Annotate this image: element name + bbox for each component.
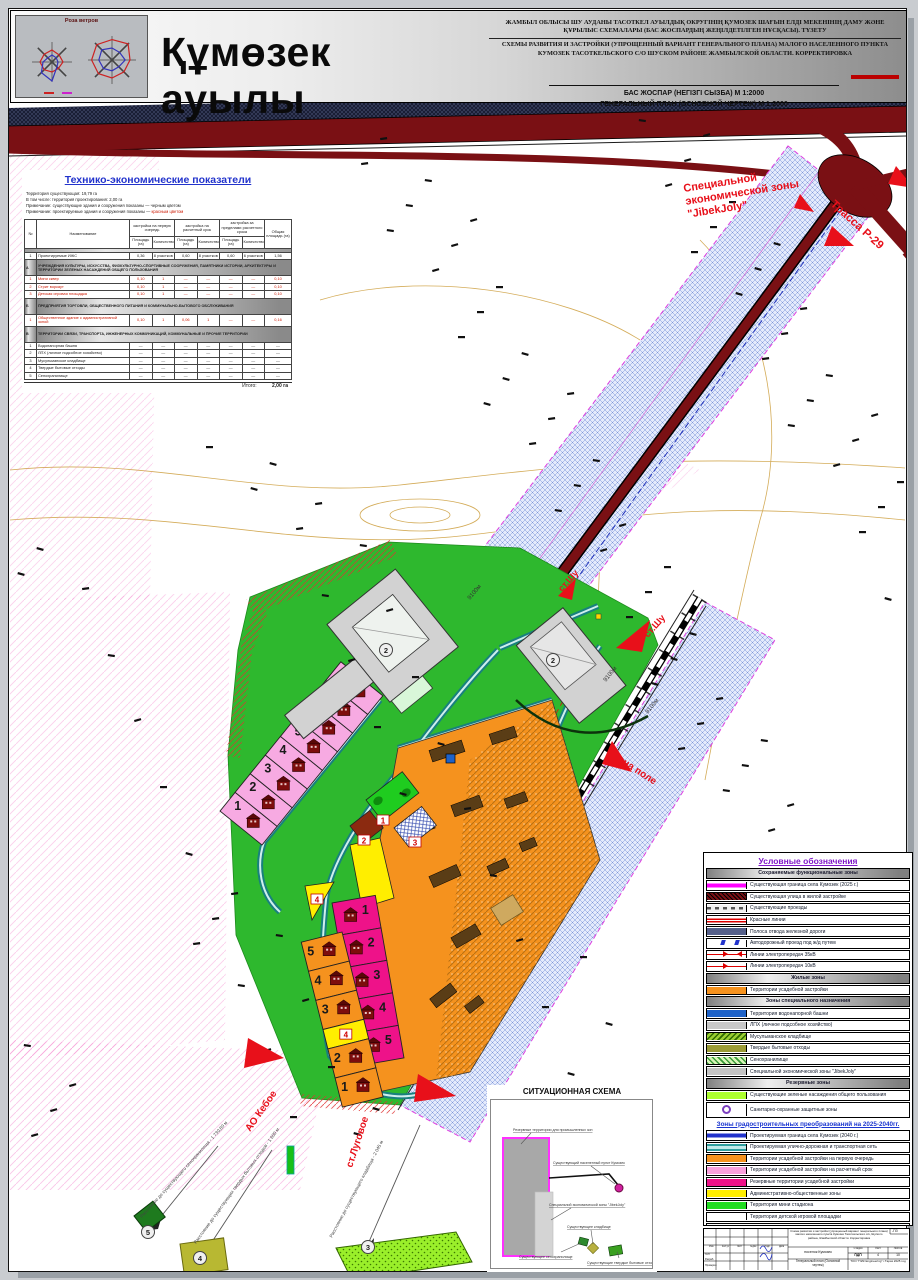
tep-row-name: Твердые бытовые отходы	[37, 365, 130, 372]
legend-item: Территория стрит воркаута	[706, 1223, 910, 1226]
tep-cell: 1	[152, 276, 175, 283]
tep-panel: Технико-экономические показатели Террито…	[22, 170, 294, 393]
tep-cell: 1	[152, 314, 175, 326]
page-title: Құмөзек ауылы	[161, 29, 481, 89]
windrose-charts	[16, 26, 147, 98]
plot-number: 1	[362, 903, 369, 917]
tep-row-total: —	[265, 365, 292, 372]
legend-title: Условные обозначения	[706, 856, 910, 866]
tep-cell: 1	[152, 283, 175, 290]
scale-russian: ГЕНЕРАЛЬНЫЙ ПЛАН (ОСНОВНОЙ ЧЕРТЕЖ) М 1:2…	[549, 100, 839, 111]
tep-cell: —	[242, 291, 265, 298]
hay-swatch-icon	[707, 1057, 747, 1064]
situational-map-box: Резервные территории для промышленных зо…	[490, 1099, 653, 1269]
legend-item: Территория водонапорной башни	[706, 1008, 910, 1019]
tep-col-header: №	[25, 220, 37, 248]
legend-item-label: Территория водонапорной башни	[750, 1011, 828, 1017]
legend-zones2040-title: Зоны градостроительных преобразований на…	[712, 1121, 904, 1129]
legend-item: Резервные территории усадебной застройки	[706, 1177, 910, 1188]
sez-swatch-icon	[707, 1068, 747, 1075]
tep-cell: —	[130, 357, 153, 364]
legend-item: Административно-общественные зоны	[706, 1188, 910, 1199]
windrose-title: Роза ветров	[16, 18, 147, 24]
cemetery-swatch-icon	[707, 1033, 747, 1040]
tep-cell: —	[242, 357, 265, 364]
playground-swatch-icon	[707, 1213, 747, 1220]
tep-section-title: УЧРЕЖДЕНИЯ КУЛЬТУРЫ, ИСКУССТВА, ФИЗКУЛЬТ…	[37, 260, 292, 276]
lep10-swatch-icon	[707, 963, 747, 970]
tep-cell: —	[175, 372, 198, 379]
tep-total-value: 2,00 га	[272, 383, 288, 389]
tep-cell: —	[175, 291, 198, 298]
tep-row-total: —	[265, 350, 292, 357]
legend-item: Проектируемая улично-дорожная и транспор…	[706, 1142, 910, 1153]
tep-cell: —	[242, 342, 265, 349]
tep-cell: —	[197, 350, 220, 357]
plot-number: 1	[341, 1080, 348, 1094]
tep-row-total: 0,10	[265, 291, 292, 298]
legend-item: Существующая улица в жилой застройке	[706, 892, 910, 903]
tep-row-name: Стрит воркаут	[37, 283, 130, 290]
tep-row-name: ЛПХ (личное подсобное хозяйство)	[37, 350, 130, 357]
legend-item: Территория детской игровой площадки	[706, 1212, 910, 1223]
driveway-swatch-icon	[707, 905, 747, 912]
tep-row-name: Детская игровая площадка	[37, 291, 130, 298]
tep-cell: 0,60	[220, 252, 243, 259]
stamp-head-cell: Лист	[733, 1246, 746, 1249]
tep-row-total: 0,10	[265, 276, 292, 283]
sanitary-swatch-icon	[707, 1104, 747, 1116]
tep-cell: —	[197, 357, 220, 364]
tep-cell: —	[242, 276, 265, 283]
stamp-doc-name: Генеральный план (Основной чертеж)	[790, 1260, 846, 1267]
sit-label-sez: Специальной экономической зоны "JibekJol…	[549, 1203, 626, 1207]
legend-item-label: Линии электропередач 10кВ	[750, 963, 816, 969]
tep-section-title: ПРЕДПРИЯТИЯ ТОРГОВЛИ, ОБЩЕСТВЕННОГО ПИТА…	[37, 298, 292, 314]
tep-cell: —	[175, 357, 198, 364]
tep-cell: 0,10	[130, 283, 153, 290]
legend-panel: Условные обозначения Сохраняемые функцио…	[703, 852, 913, 1226]
tep-cell: —	[130, 342, 153, 349]
tep-cell: —	[197, 365, 220, 372]
legend-item-label: Автодорожный проезд под ж/д путем	[750, 940, 836, 946]
legend-item: Существующие зеленые насаждения общего п…	[706, 1090, 910, 1101]
legend-item: Твердые бытовые отходы	[706, 1043, 910, 1054]
scale-block: БАС ЖОСПАР (НЕГІЗГІ СЫЗБА) М 1:2000 ГЕНЕ…	[549, 85, 839, 110]
boundary2040-swatch-icon	[707, 1132, 747, 1139]
legend-item-label: Проектируемая граница села Кумозек (2040…	[750, 1133, 858, 1139]
tep-cell: 0,06	[175, 314, 198, 326]
underpass-swatch-icon	[707, 940, 747, 947]
tep-cell: 0,36	[130, 252, 153, 259]
subtitle-russian: СХЕМЫ РАЗВИТИЯ И ЗАСТРОЙКИ (УПРОЩЕННЫЙ В…	[489, 38, 901, 57]
legend-item-label: Существующая граница села Кумозек (2025 …	[750, 882, 858, 888]
legend-item: Проектируемая граница села Кумозек (2040…	[706, 1130, 910, 1141]
legend-item: Территория мини стадиона	[706, 1200, 910, 1211]
legend-item-label: ЛПХ (личное подсобное хозяйство)	[750, 1022, 832, 1028]
redlines-swatch-icon	[707, 917, 747, 924]
boxed-number: 4	[315, 895, 320, 904]
plot-number: 2	[334, 1051, 341, 1065]
stamp-role-cell: Разраб.	[705, 1259, 729, 1262]
legend-item-label: Резервные территории усадебной застройки	[750, 1179, 854, 1185]
tep-cell: 8 участков	[152, 252, 175, 259]
legend-item-label: Существующие проезды	[750, 905, 807, 911]
tep-note: Примечание: проектируемые здания и соору…	[26, 209, 290, 215]
legend-item-label: Твердые бытовые отходы	[750, 1045, 810, 1051]
tep-cell: —	[242, 350, 265, 357]
plot-marker-number: 4	[344, 1031, 349, 1040]
tep-row-name: Общественное здание с административной з…	[37, 314, 130, 326]
legend-item-label: Территория детской игровой площадки	[750, 1214, 841, 1220]
tep-cell: 0,10	[130, 276, 153, 283]
stadium-swatch-icon	[707, 1202, 747, 1209]
tep-col-header: Площадь (га)	[130, 236, 153, 248]
stamp-code: -ПЗ	[892, 1229, 898, 1233]
legend-section-header: Сохраняемые функциональные зоны	[706, 868, 910, 879]
street-swatch-icon	[707, 893, 747, 900]
stamp-stage-label: Стадия	[849, 1248, 867, 1251]
tep-col-header: Площадь (га)	[220, 236, 243, 248]
stamp-head-cell: №док.	[747, 1246, 760, 1249]
tep-cell: —	[220, 283, 243, 290]
tep-cell: —	[130, 350, 153, 357]
tep-total-label: Итого:	[242, 383, 257, 389]
sit-label-hay: Существующее сенохранилище	[519, 1255, 573, 1259]
tep-cell: —	[220, 357, 243, 364]
tep-col-header: Наименование	[37, 220, 130, 248]
tep-cell: 1	[197, 314, 220, 326]
legend-item: Линии электропередач 35кВ	[706, 950, 910, 961]
legend-item-label: Территории усадебной застройки	[750, 987, 828, 993]
tep-cell: —	[130, 365, 153, 372]
plot-number: 2	[368, 935, 375, 949]
legend-section-header: Резервные зоны	[706, 1078, 910, 1089]
legend-item: Линии электропередач 10кВ	[706, 961, 910, 972]
stamp-firm: ТОО "ПИК Engineering" г.Тараз 2025 год	[849, 1260, 907, 1263]
sit-label-reserve: Резервные территории для промышленных зо…	[513, 1128, 593, 1132]
situational-map-drawing: Резервные территории для промышленных зо…	[491, 1100, 652, 1268]
tep-row-total: 0,10	[265, 283, 292, 290]
legend-item: Полоса отвода железной дороги	[706, 926, 910, 937]
situational-map-panel: СИТУАЦИОННАЯ СХЕМА Рез	[487, 1085, 657, 1272]
tep-row-total: —	[265, 342, 292, 349]
stamp-head-cell: Подп.	[761, 1246, 774, 1249]
legend-item-label: Административно-общественные зоны	[750, 1191, 841, 1197]
legend-item: Территории усадебной застройки	[706, 985, 910, 996]
lep35-swatch-icon	[707, 951, 747, 958]
tep-row-total: —	[265, 372, 292, 379]
red-accent-bar	[851, 75, 899, 79]
subtitle-kazakh: ЖАМБЫЛ ОБЛЫСЫ ШУ АУДАНЫ ТАСОТКЕЛ АУЫЛДЫҚ…	[489, 19, 901, 35]
plot-number: 5	[307, 944, 314, 958]
tep-cell: —	[175, 342, 198, 349]
stamp-sheets-label: Листов	[889, 1248, 907, 1251]
magenta3-swatch-icon	[707, 1179, 747, 1186]
legend-item: Автодорожный проезд под ж/д путем	[706, 938, 910, 949]
tep-section-title: ТЕРРИТОРИИ СВЯЗИ, ТРАНСПОРТА, ИНЖЕНЕРНЫХ…	[37, 326, 292, 342]
legend-item-label: Проектируемая улично-дорожная и транспор…	[750, 1144, 877, 1150]
greenery-swatch-icon	[707, 1092, 747, 1099]
tep-cell: 1	[152, 291, 175, 298]
situational-map-title: СИТУАЦИОННАЯ СХЕМА	[487, 1085, 657, 1098]
tep-cell: —	[242, 365, 265, 372]
legend-item-label: Мусульманское кладбище	[750, 1034, 811, 1040]
sit-label-cemetery: Существующее кладбище	[567, 1225, 611, 1229]
tep-cell: —	[220, 291, 243, 298]
stamp-head-cell: Дата	[775, 1246, 788, 1249]
roadnet-swatch-icon	[707, 1144, 747, 1151]
tep-section-letter: Б	[25, 298, 37, 314]
tep-section-letter: В	[25, 326, 37, 342]
plot-number: 5	[385, 1033, 392, 1047]
legend-item-label: Специальной экономической зоны "JibekJol…	[750, 1069, 856, 1075]
tep-cell: —	[220, 276, 243, 283]
sit-label-tbo: Существующие твердые бытовые отходы	[587, 1261, 652, 1265]
legend-item: Красные линии	[706, 915, 910, 926]
legend-item: Санитарно-охранные защитные зоны	[706, 1102, 910, 1118]
tep-title: Технико-экономические показатели	[24, 174, 292, 186]
tep-cell: —	[220, 342, 243, 349]
tep-cell: —	[220, 365, 243, 372]
stamp-sheets: 10	[889, 1254, 907, 1258]
tep-cell: —	[130, 372, 153, 379]
tep-cell: 0,10	[130, 314, 153, 326]
tep-cell: —	[152, 350, 175, 357]
tep-cell: —	[175, 283, 198, 290]
legend-item: ЛПХ (личное подсобное хозяйство)	[706, 1020, 910, 1031]
windrose-panel: Роза ветров	[15, 15, 148, 98]
circled-number: 2	[551, 656, 555, 665]
plot-number: 1	[234, 799, 241, 813]
legend-item-label: Сенохранилище	[750, 1057, 788, 1063]
stamp-place: поселок Кумозек	[790, 1250, 846, 1254]
legend-section-header: Жилые зоны	[706, 973, 910, 984]
pink2-swatch-icon	[707, 1167, 747, 1174]
boxed-number: 3	[413, 838, 418, 847]
tep-col-header: застройка на первую очередь	[130, 220, 175, 236]
circled-number: 5	[146, 1228, 150, 1237]
tep-cell: —	[197, 283, 220, 290]
tep-notes: Территория существующая: 19,79 гаВ том ч…	[26, 191, 290, 215]
orange1-swatch-icon	[707, 1155, 747, 1162]
plot-number: 2	[249, 780, 256, 794]
title-stamp: -ПЗ Схема развития и застройки (упрощенн…	[703, 1228, 910, 1272]
stamp-role-cell: Проверил	[705, 1265, 729, 1268]
tep-row-name: Проектируемые ИЖС	[37, 252, 130, 259]
tep-cell: —	[220, 372, 243, 379]
tep-cell: —	[152, 365, 175, 372]
legend-item-label: Красные линии	[750, 917, 786, 923]
tep-cell: —	[152, 342, 175, 349]
tep-cell: —	[197, 276, 220, 283]
tep-cell: —	[220, 314, 243, 326]
tep-col-header: Площадь (га)	[175, 236, 198, 248]
legend-item: Мусульманское кладбище	[706, 1032, 910, 1043]
tep-cell: 0,10	[130, 291, 153, 298]
lph-swatch-icon	[707, 1022, 747, 1029]
boxed-number: 1	[381, 816, 386, 825]
tep-col-header: Количество	[242, 236, 265, 248]
tep-table: №Наименованиезастройка на первую очередь…	[24, 219, 292, 380]
legend-item-label: Территории усадебной застройки на расчет…	[750, 1167, 872, 1173]
tep-cell: 8 участков	[197, 252, 220, 259]
tep-col-header: Общая площадь (га)	[265, 220, 292, 248]
legend-items: Сохраняемые функциональные зоныСуществую…	[706, 868, 910, 1226]
workout-swatch-icon	[707, 1225, 747, 1226]
tep-cell: —	[152, 357, 175, 364]
scale-kazakh: БАС ЖОСПАР (НЕГІЗГІ СЫЗБА) М 1:2000	[549, 89, 839, 100]
tep-row-name: Мусульманское кладбище	[37, 357, 130, 364]
usadeb-swatch-icon	[707, 987, 747, 994]
legend-item-label: Территория стрит воркаута	[750, 1225, 813, 1226]
tep-cell: —	[197, 372, 220, 379]
tep-cell: —	[197, 291, 220, 298]
tep-cell: —	[197, 342, 220, 349]
stamp-role-cell: ГАП	[705, 1254, 729, 1257]
plot-number: 3	[322, 1002, 329, 1016]
sit-label-settlement: Существующий населенный пункт Кумозек	[553, 1161, 625, 1165]
admin-swatch-icon	[707, 1190, 747, 1197]
stamp-head-cell: Кол.уч	[719, 1246, 732, 1249]
stamp-sheet: 4	[869, 1254, 887, 1258]
stamp-sheet-label: Лист	[869, 1248, 887, 1251]
title-block-header: Роза ветров Құмөзек ауылы ЖАМБЫЛ ОБЛЫСЫ …	[10, 10, 907, 103]
header-subtitles: ЖАМБЫЛ ОБЛЫСЫ ШУ АУДАНЫ ТАСОТКЕЛ АУЫЛДЫҚ…	[489, 19, 901, 97]
tep-row-total: 1,56	[265, 252, 292, 259]
tep-row-name: Мини сквер	[37, 276, 130, 283]
legend-item: Территории усадебной застройки на расчет…	[706, 1165, 910, 1176]
sez-jibekjoly-corridor	[482, 146, 872, 616]
tep-total: Итого: 2,00 га	[24, 382, 292, 389]
legend-item-label: Полоса отвода железной дороги	[750, 929, 825, 935]
stamp-head-cell: Изм.	[705, 1246, 718, 1249]
tep-col-header: Количество	[197, 236, 220, 248]
plot-number: 3	[373, 968, 380, 982]
legend-item: Территории усадебной застройки на первую…	[706, 1154, 910, 1165]
drawing-sheet-page: 12345678 12345 543421	[0, 0, 918, 1280]
watertower-swatch-icon	[707, 1010, 747, 1017]
tep-cell: —	[242, 314, 265, 326]
railband-swatch-icon	[707, 928, 747, 935]
legend-section-header: Зоны специального назначения	[706, 996, 910, 1007]
tep-cell: —	[175, 276, 198, 283]
stamp-stage: ПДП	[849, 1254, 867, 1258]
circled-number: 2	[384, 646, 388, 655]
legend-item: Специальной экономической зоны "JibekJol…	[706, 1066, 910, 1077]
plot-number: 4	[379, 1000, 386, 1014]
legend-item-label: Существующие зеленые насаждения общего п…	[750, 1092, 886, 1098]
legend-item-label: Территория мини стадиона	[750, 1202, 813, 1208]
tep-cell: 6 участков	[242, 252, 265, 259]
tep-cell: —	[242, 372, 265, 379]
tep-cell: —	[175, 350, 198, 357]
tep-row-name: Водонапорная башня	[37, 342, 130, 349]
tep-col-header: застройка за пределами расчетного срока	[220, 220, 265, 236]
circled-number: 3	[366, 1243, 370, 1252]
tep-col-header: застройка на расчетный срок	[175, 220, 220, 236]
tbo-swatch-icon	[707, 1045, 747, 1052]
legend-item: Сенохранилище	[706, 1055, 910, 1066]
legend-item-label: Санитарно-охранные защитные зоны	[750, 1107, 837, 1113]
legend-item-label: Существующая улица в жилой застройке	[750, 894, 846, 900]
tep-row-total: —	[265, 357, 292, 364]
boundary2025-swatch-icon	[707, 882, 747, 889]
tep-cell: 0,60	[175, 252, 198, 259]
legend-item-label: Линии электропередач 35кВ	[750, 952, 816, 958]
tep-row-name: Сенохранилище	[37, 372, 130, 379]
legend-item-label: Территории усадебной застройки на первую…	[750, 1156, 874, 1162]
tep-section-letter: А	[25, 260, 37, 276]
st-lugovoe-label: ст.Луговое	[344, 1115, 371, 1169]
legend-item: Существующие проезды	[706, 903, 910, 914]
tep-cell: —	[175, 365, 198, 372]
tep-row-total: 0,16	[265, 314, 292, 326]
plot-number: 3	[264, 762, 271, 776]
tep-col-header: Количество	[152, 236, 175, 248]
legend-item: Существующая граница села Кумозек (2025 …	[706, 880, 910, 891]
tep-cell: —	[242, 283, 265, 290]
stamp-object: Схема развития и застройки (упрощенный в…	[790, 1230, 888, 1240]
tep-cell: —	[220, 350, 243, 357]
plot-number: 4	[314, 973, 321, 987]
plot-number: 4	[280, 743, 287, 757]
tep-cell: —	[152, 372, 175, 379]
boxed-number: 2	[362, 836, 367, 845]
